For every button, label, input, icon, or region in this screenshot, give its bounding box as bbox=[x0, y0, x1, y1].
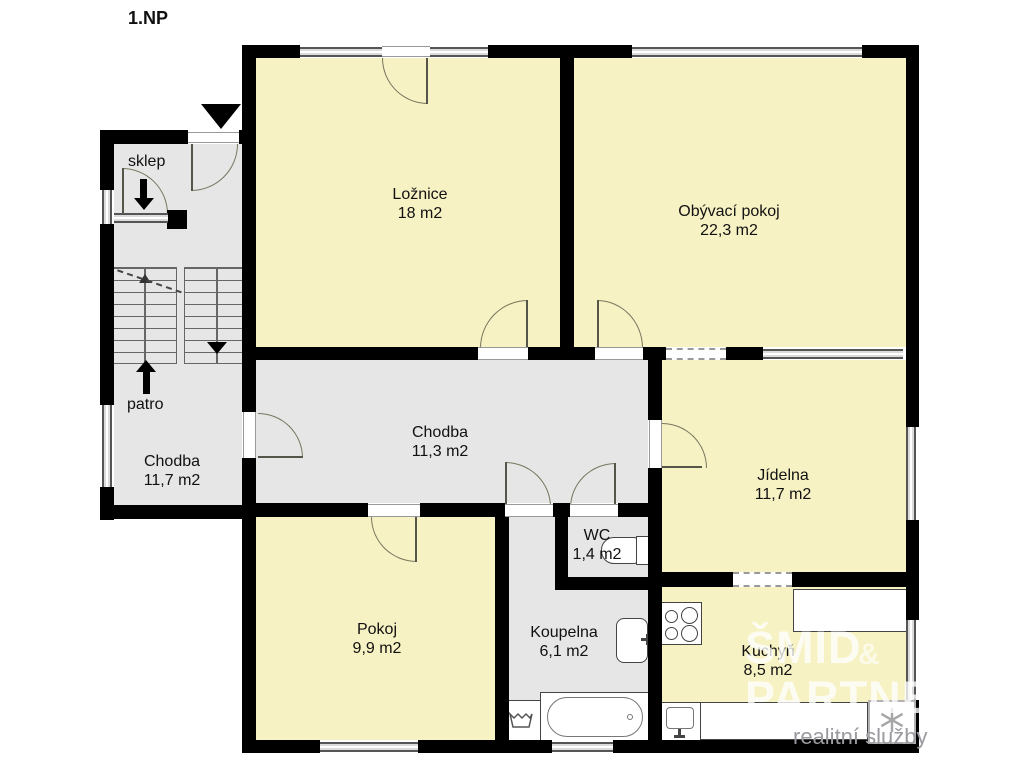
wall-segment bbox=[648, 347, 662, 420]
door-sill bbox=[368, 504, 420, 517]
room-name: Koupelna bbox=[530, 623, 598, 642]
room-area: 11,7 m2 bbox=[755, 485, 812, 504]
burner-icon bbox=[681, 607, 698, 624]
room-name: Pokoj bbox=[353, 620, 402, 639]
kitchen-faucet-icon-2 bbox=[674, 735, 685, 738]
door-sill bbox=[505, 504, 553, 517]
wall-segment bbox=[239, 130, 256, 144]
window bbox=[300, 47, 382, 57]
wall-segment bbox=[495, 517, 509, 740]
open-passage-dashed bbox=[733, 572, 792, 587]
door-panel bbox=[258, 456, 303, 458]
door-sill bbox=[649, 420, 662, 468]
wall-segment bbox=[100, 224, 114, 405]
kitchen-sink-basin bbox=[666, 707, 694, 729]
room-area: 9,9 m2 bbox=[353, 639, 402, 658]
room-name: Jídelna bbox=[755, 466, 812, 485]
window bbox=[906, 620, 916, 700]
room-area: 1,4 m2 bbox=[573, 545, 622, 564]
door-panel bbox=[662, 466, 702, 468]
room-name: Kuchyň bbox=[741, 642, 794, 661]
room-name: Obývací pokoj bbox=[678, 202, 779, 221]
wall-segment bbox=[792, 572, 906, 587]
wall-segment bbox=[256, 347, 478, 360]
stairs-down-arrow-icon bbox=[207, 342, 227, 354]
wall-segment bbox=[488, 45, 632, 58]
door-panel bbox=[415, 517, 417, 562]
wall-segment bbox=[528, 347, 595, 360]
wall-segment bbox=[560, 58, 574, 347]
patro-arrow-shaft bbox=[143, 371, 150, 394]
window bbox=[102, 190, 112, 224]
wall-segment bbox=[418, 740, 552, 753]
wall-segment bbox=[242, 503, 368, 517]
burner-icon bbox=[665, 610, 678, 623]
label-sklep: sklep bbox=[128, 153, 165, 171]
bathtub-drain bbox=[627, 714, 633, 720]
wall-segment bbox=[662, 572, 733, 587]
door-sill bbox=[382, 46, 430, 57]
room-area: 11,7 m2 bbox=[144, 471, 201, 490]
room-label-chodba-leva: Chodba 11,7 m2 bbox=[144, 452, 201, 490]
door-sill bbox=[243, 412, 256, 458]
door-sill bbox=[595, 347, 643, 360]
room-area: 11,3 m2 bbox=[412, 442, 469, 461]
wall-segment bbox=[726, 347, 763, 360]
door-sill bbox=[188, 132, 239, 143]
kitchen-counter-bottom bbox=[700, 702, 868, 740]
interior-window bbox=[763, 349, 903, 359]
room-name: WC bbox=[573, 526, 622, 545]
room-label-jidelna: Jídelna 11,7 m2 bbox=[755, 466, 812, 504]
window bbox=[632, 47, 862, 57]
wall-segment bbox=[906, 45, 919, 427]
agency-logo-box bbox=[868, 700, 916, 744]
door-panel bbox=[614, 463, 616, 508]
room-area: 8,5 m2 bbox=[741, 661, 794, 680]
wall-segment bbox=[100, 130, 114, 190]
room-label-pokoj: Pokoj 9,9 m2 bbox=[353, 620, 402, 658]
window bbox=[320, 742, 418, 752]
wall-segment bbox=[555, 577, 648, 590]
wall-segment bbox=[100, 505, 256, 519]
wall-segment bbox=[906, 520, 919, 620]
wall-segment bbox=[167, 210, 187, 229]
burner-icon bbox=[681, 625, 698, 642]
wall-segment bbox=[555, 517, 568, 577]
door-panel bbox=[597, 300, 599, 348]
room-label-chodba-hlavni: Chodba 11,3 m2 bbox=[412, 423, 469, 461]
door-panel bbox=[526, 300, 528, 348]
room-label-obyvaci: Obývací pokoj 22,3 m2 bbox=[678, 202, 779, 240]
wall-segment bbox=[553, 503, 570, 517]
open-passage-dashed bbox=[666, 348, 726, 360]
wall-segment bbox=[242, 45, 256, 412]
wall-segment bbox=[648, 517, 662, 753]
room-label-loznice: Ložnice 18 m2 bbox=[392, 185, 447, 223]
room-label-kuchyn: Kuchyň 8,5 m2 bbox=[741, 642, 794, 680]
laundry-tub-icon bbox=[508, 708, 534, 735]
room-area: 22,3 m2 bbox=[678, 221, 779, 240]
room-name: Chodba bbox=[144, 452, 201, 471]
entrance-arrow-icon bbox=[201, 104, 241, 129]
window bbox=[552, 742, 613, 752]
sklep-arrow-icon bbox=[134, 198, 154, 210]
window bbox=[430, 47, 488, 57]
door-panel bbox=[426, 58, 428, 104]
door-panel bbox=[122, 168, 124, 214]
window bbox=[102, 405, 112, 487]
door-panel bbox=[505, 462, 507, 507]
door-panel bbox=[191, 144, 193, 191]
door-sill bbox=[478, 347, 528, 360]
window bbox=[906, 427, 916, 520]
room-area: 18 m2 bbox=[392, 204, 447, 223]
room-name: Chodba bbox=[412, 423, 469, 442]
burner-icon bbox=[665, 627, 678, 640]
floor-plan: 1.NP bbox=[0, 0, 1024, 768]
door-sill bbox=[570, 504, 618, 517]
room-label-wc: WC 1,4 m2 bbox=[573, 526, 622, 564]
sklep-arrow-shaft bbox=[140, 179, 147, 199]
sklep-passage-sill bbox=[114, 213, 168, 223]
stove bbox=[659, 602, 702, 645]
logo-asterisk-icon bbox=[878, 706, 906, 739]
kitchen-counter-top bbox=[793, 589, 907, 632]
wall-segment bbox=[420, 503, 505, 517]
page-title: 1.NP bbox=[128, 8, 168, 29]
room-area: 6,1 m2 bbox=[530, 642, 598, 661]
room-label-koupelna: Koupelna 6,1 m2 bbox=[530, 623, 598, 661]
room-name: Ložnice bbox=[392, 185, 447, 204]
label-patro: patro bbox=[127, 396, 163, 414]
wall-segment bbox=[618, 503, 662, 517]
